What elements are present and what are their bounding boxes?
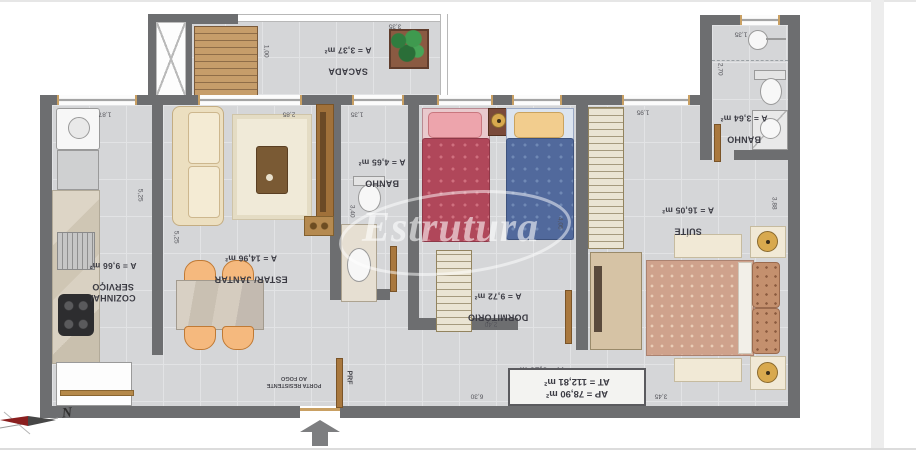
- dimension-label: 5,25: [172, 224, 179, 250]
- room-label-sacada: SACADA A = 3,37 m²: [300, 34, 396, 87]
- balcony-railing-right: [440, 14, 448, 98]
- headboard-cushion-1: [752, 262, 780, 308]
- dining-chair: [184, 326, 216, 350]
- dimension-label: 1,35: [344, 110, 370, 117]
- wall-right: [788, 15, 800, 418]
- wall-left: [40, 95, 52, 418]
- washing-machine-drum: [68, 117, 90, 139]
- lamp-suite-top: [757, 231, 778, 252]
- room-label-cozinha: COZINHA/ SERVIÇO A = 9,66 m²: [73, 250, 153, 314]
- fire-door-tag: PRF: [346, 371, 353, 393]
- banho1-window: [352, 95, 404, 105]
- dimension-label: 1,87: [92, 110, 118, 117]
- pillow-pink: [428, 112, 482, 138]
- page-right-band: [871, 0, 884, 448]
- entry-arrow-icon: [300, 420, 340, 446]
- headboard-cushion-2: [752, 308, 780, 354]
- coffee-table: [256, 146, 288, 194]
- balcony-railing-top: [238, 14, 448, 22]
- elevator-shaft: [156, 22, 186, 96]
- dorm-window-1: [437, 95, 493, 105]
- dimension-label: 6,30: [464, 392, 490, 399]
- dorm-window-2: [512, 95, 562, 105]
- dimension-label: 2,70: [716, 56, 723, 82]
- faucet-bar: [766, 38, 786, 40]
- summary-at: AT = 112,81 m²: [544, 375, 610, 387]
- summary-box: AP = 78,90 m² AT = 112,81 m²: [508, 368, 646, 406]
- entry-threshold: [300, 408, 340, 411]
- fire-door-label: PORTA RESISTENTE AO FOGO: [252, 374, 336, 388]
- dimension-label: 5,25: [136, 182, 143, 208]
- wardrobe-suite: [588, 107, 624, 249]
- coffee-table-decor: [266, 174, 273, 181]
- dimension-label: 1,35: [728, 30, 754, 37]
- page-bottom-edge: [0, 448, 916, 450]
- banho2-window: [740, 15, 780, 25]
- dimension-label: 2,40: [478, 320, 504, 327]
- bed-double-fold: [738, 262, 752, 354]
- sofa-cushion-1: [188, 112, 220, 164]
- suite-window: [622, 95, 690, 105]
- dresser-tv: [594, 266, 602, 332]
- dining-chair: [222, 326, 254, 350]
- page-top-edge: [0, 0, 916, 2]
- wall-kitchen-living: [152, 105, 163, 355]
- kitchen-window: [57, 95, 137, 105]
- room-label-suite: SUÍTE A = 16,05 m²: [638, 194, 738, 247]
- lamp-dorm: [491, 113, 506, 128]
- wood-deck: [194, 26, 258, 96]
- dimension-label: 1,95: [630, 108, 656, 115]
- room-label-estar: ESTAR/ JANTAR A = 14,96 m²: [195, 242, 307, 295]
- dimension-label: 3,88: [770, 190, 777, 216]
- tv-screen: [320, 112, 326, 212]
- dimension-label: 3,45: [648, 392, 674, 399]
- sofa-cushion-2: [188, 166, 220, 218]
- lamp-suite-bottom: [757, 362, 778, 383]
- dorm-door: [565, 290, 572, 344]
- summary-ap: AP = 78,90 m²: [546, 387, 608, 399]
- dimension-label: 2,85: [276, 110, 302, 117]
- service-door-leaf: [60, 390, 134, 396]
- bench-suite-bottom: [674, 358, 742, 382]
- wall-bottom-right: [340, 406, 800, 418]
- compass-north-label: N: [61, 406, 73, 423]
- laundry-tank: [57, 150, 99, 190]
- shower-divider: [712, 60, 788, 61]
- toilet2-bowl: [760, 78, 782, 105]
- dimension-label: 1,00: [262, 38, 269, 64]
- pillow-yellow: [514, 112, 564, 138]
- dimension-label: 3,35: [382, 22, 408, 29]
- floorplan-page: SACADA A = 3,37 m² COZINHA/ SERVIÇO A = …: [0, 0, 916, 465]
- watermark-text: Estrutura: [362, 204, 539, 252]
- shaft-left-wall: [148, 14, 156, 100]
- entry-fire-door: [336, 358, 343, 408]
- balcony-door: [198, 95, 302, 105]
- room-label-banho2: BANHO A = 3,64 m²: [704, 102, 784, 155]
- compass-rose-icon: [0, 398, 95, 453]
